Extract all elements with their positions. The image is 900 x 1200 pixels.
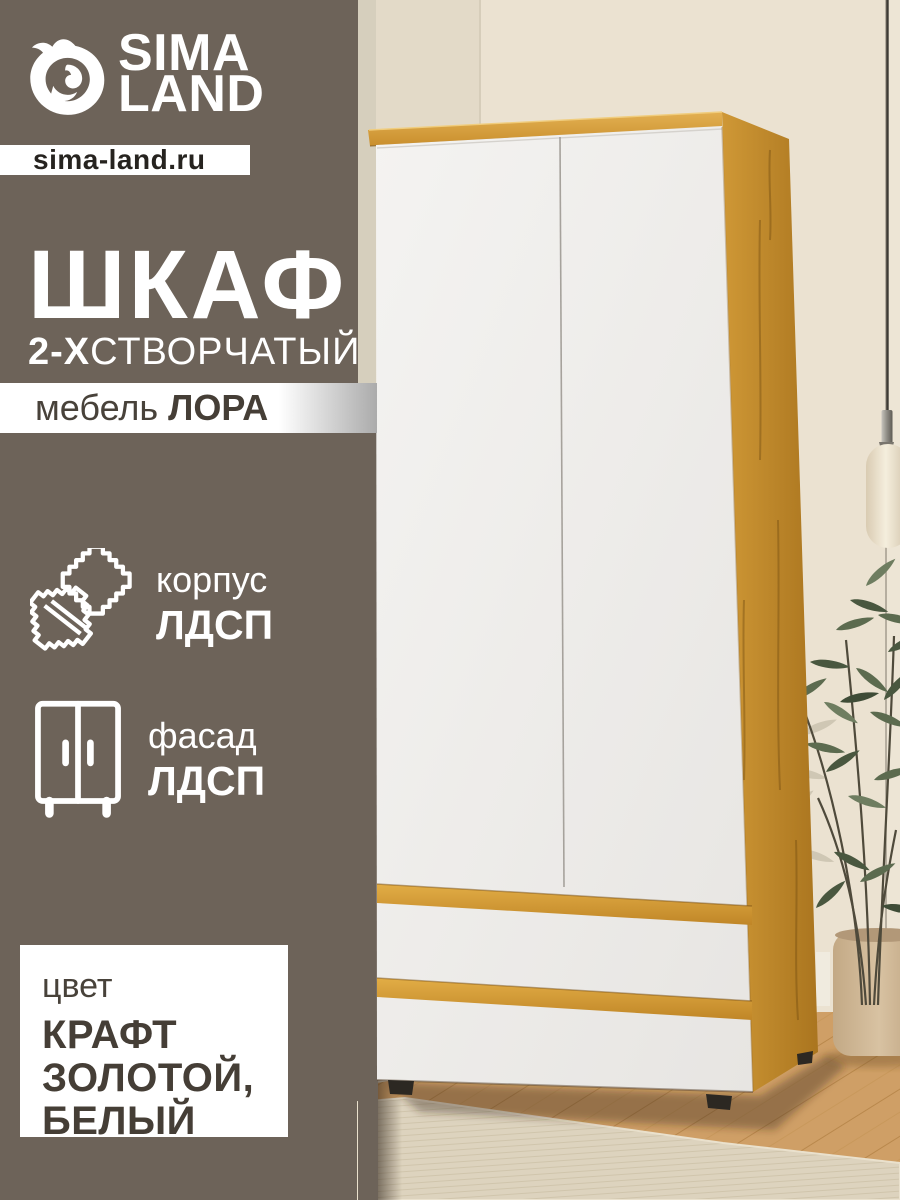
title-block: ШКАФ 2-ХСТВОРЧАТЫЙ [28, 236, 360, 374]
panel-cover [358, 430, 378, 1200]
logo-line2: LAND [118, 74, 264, 115]
subtitle-bold: 2-Х [28, 331, 90, 373]
wardrobe-icon [30, 698, 126, 822]
material-swatch-icon [30, 548, 134, 660]
baseboard [816, 952, 830, 1006]
product-title: ШКАФ [28, 236, 360, 333]
wardrobe-doors [376, 126, 753, 1092]
product-card: SIMA LAND sima-land.ru ШКАФ 2-ХСТВОРЧАТЫ… [0, 0, 900, 1200]
dolphin-logo-icon [26, 28, 106, 120]
subtitle-rest: СТВОРЧАТЫЙ [90, 331, 360, 373]
color-spec-box: цвет КРАФТ ЗОЛОТОЙ, БЕЛЫЙ [20, 945, 288, 1137]
product-subtitle: 2-ХСТВОРЧАТЫЙ [28, 331, 360, 374]
collection-prefix: мебель [35, 387, 168, 429]
wardrobe [368, 112, 818, 1110]
website-bar: sima-land.ru [0, 145, 250, 175]
collection-bar: мебель ЛОРА [0, 383, 377, 433]
website-url: sima-land.ru [33, 144, 205, 176]
feature-front-material: фасад ЛДСП [30, 698, 265, 822]
color-value-line: БЕЛЫЙ [42, 1100, 288, 1143]
feature-body-material: корпус ЛДСП [30, 548, 273, 660]
color-value-line: КРАФТ [42, 1014, 288, 1057]
feature-label: корпус [156, 560, 273, 600]
brand-logo: SIMA LAND [26, 28, 264, 120]
collection-name: ЛОРА [168, 387, 268, 429]
feature-value: ЛДСП [156, 603, 273, 648]
feature-label: фасад [148, 716, 265, 756]
feature-value: ЛДСП [148, 759, 265, 804]
color-label: цвет [42, 967, 288, 1006]
color-value-line: ЗОЛОТОЙ, [42, 1057, 288, 1100]
